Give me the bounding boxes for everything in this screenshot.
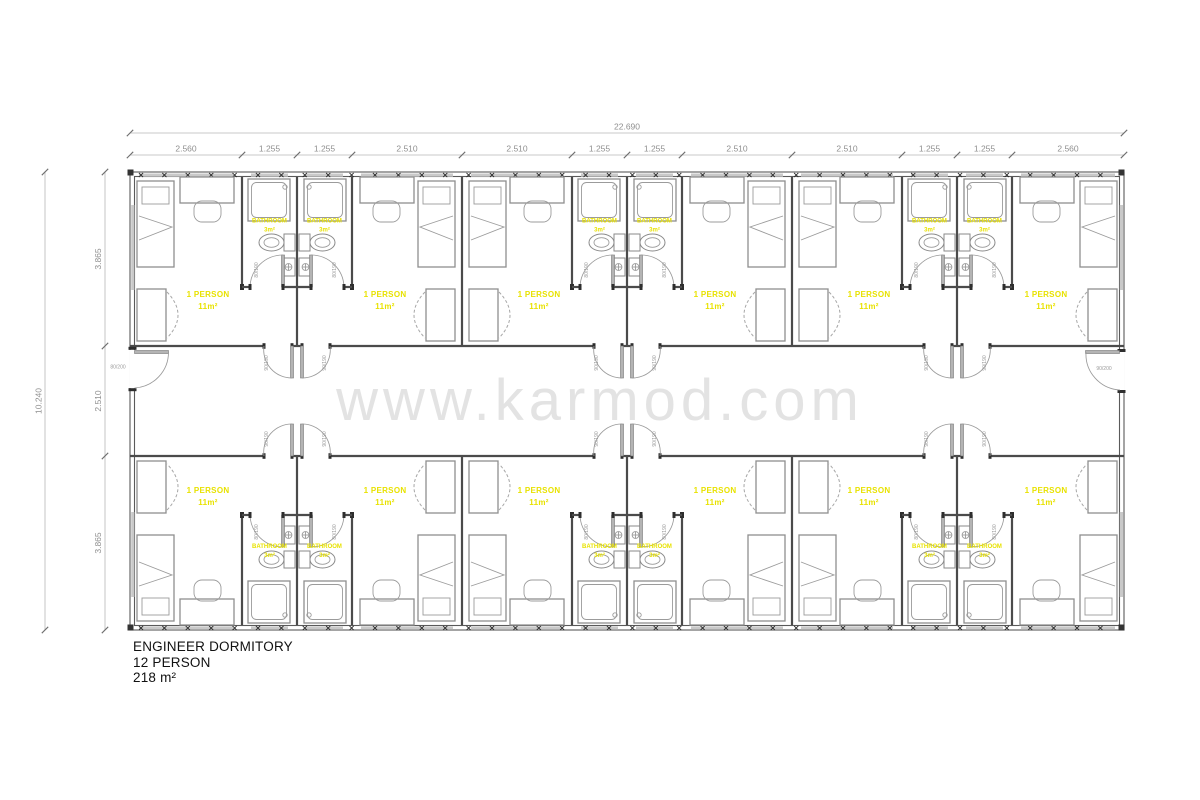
bathroom-door-leaf	[310, 255, 313, 287]
chair	[703, 580, 730, 601]
chair	[854, 201, 881, 222]
bathroom-label: 3m²	[319, 227, 330, 234]
toilet-tank	[629, 234, 640, 251]
door-jamb	[579, 284, 582, 290]
door-size-label: 80/190	[332, 524, 338, 540]
chair	[194, 201, 221, 222]
width-dimension-label: 2.510	[506, 144, 528, 154]
bathroom-label: 3m²	[264, 552, 275, 559]
door-size-label: 90/190	[594, 355, 600, 371]
bathroom-label: 3m²	[979, 227, 990, 234]
bathroom-label: 3m²	[924, 227, 935, 234]
bathroom-label: 3m²	[594, 552, 605, 559]
chair	[194, 580, 221, 601]
room-door-leaf	[951, 346, 954, 378]
bed	[799, 181, 836, 267]
room-label: 11m²	[198, 498, 217, 507]
bathroom-door-swing	[971, 515, 1004, 547]
bed	[469, 181, 506, 267]
title-capacity: 12 PERSON	[133, 655, 293, 671]
bed	[799, 535, 836, 621]
toilet-tank	[614, 234, 625, 251]
wardrobe	[426, 289, 455, 341]
toilet-tank	[944, 551, 955, 568]
door-jamb	[612, 284, 615, 290]
height-dimension-label: 3.865	[93, 532, 103, 554]
width-dimension-label: 1.255	[259, 144, 281, 154]
desk	[360, 599, 414, 625]
door-jamb	[1118, 390, 1126, 393]
toilet-tank	[284, 234, 295, 251]
toilet	[310, 234, 335, 251]
width-dimension-label: 2.560	[175, 144, 197, 154]
bathroom-door-swing	[641, 515, 674, 547]
wardrobe	[469, 289, 498, 341]
room-label: 11m²	[375, 302, 394, 311]
room-door-leaf	[951, 424, 954, 456]
wardrobe	[756, 461, 785, 513]
bathroom-door-swing	[971, 255, 1004, 287]
toilet	[919, 234, 944, 251]
bathroom-label: BATHROOM	[582, 219, 617, 225]
wardrobe	[137, 461, 166, 513]
wardrobe-door	[744, 464, 755, 510]
bathroom-door-swing	[311, 515, 344, 547]
wardrobe-door	[167, 464, 178, 510]
width-dimension-label: 2.560	[1057, 144, 1079, 154]
bathroom-label: BATHROOM	[967, 544, 1002, 550]
window-band	[306, 627, 343, 630]
width-dimension-label: 1.255	[589, 144, 611, 154]
wardrobe-door	[167, 292, 178, 338]
bathroom-label: BATHROOM	[252, 219, 287, 225]
room-label: 11m²	[859, 302, 878, 311]
door-jamb	[343, 512, 346, 518]
bathroom-door-swing	[641, 255, 674, 287]
bathroom-label: BATHROOM	[582, 544, 617, 550]
door-jamb	[970, 284, 973, 290]
room-label: 1 PERSON	[694, 486, 737, 495]
desk	[180, 177, 234, 203]
room-label: 1 PERSON	[1025, 290, 1068, 299]
door-jamb	[579, 512, 582, 518]
bathroom-label: 3m²	[319, 552, 330, 559]
room-door-leaf	[291, 346, 294, 378]
door-size-label: 80/190	[254, 262, 260, 278]
room-label: 11m²	[375, 498, 394, 507]
door-jamb	[942, 512, 945, 518]
bed	[137, 181, 174, 267]
room-door-leaf	[961, 346, 964, 378]
entry-door-leaf	[1086, 351, 1120, 354]
room-label: 1 PERSON	[364, 486, 407, 495]
window-band	[1120, 512, 1123, 597]
room-door-leaf	[961, 424, 964, 456]
desk	[840, 599, 894, 625]
width-dimension-label: 1.255	[314, 144, 336, 154]
door-size-label: 90/190	[594, 431, 600, 447]
title-project-name: ENGINEER DORMITORY	[133, 639, 293, 655]
bathroom-label: BATHROOM	[252, 544, 287, 550]
chair	[524, 580, 551, 601]
door-jamb	[909, 512, 912, 518]
door-size-label: 90/190	[652, 431, 658, 447]
toilet-tank	[944, 234, 955, 251]
wardrobe-door	[1076, 464, 1087, 510]
room-label: 1 PERSON	[187, 486, 230, 495]
door-size-label: 80/190	[662, 524, 668, 540]
window-band	[801, 627, 893, 630]
total-height-dimension: 10.240	[34, 388, 44, 414]
bathroom-label: 3m²	[979, 552, 990, 559]
bathroom-label: BATHROOM	[307, 544, 342, 550]
door-jamb	[249, 284, 252, 290]
bathroom-label: BATHROOM	[637, 544, 672, 550]
door-jamb	[640, 512, 643, 518]
door-jamb	[970, 512, 973, 518]
wall-opening	[129, 350, 136, 388]
door-size-label: 90/190	[924, 355, 930, 371]
room-door-leaf	[291, 424, 294, 456]
bathroom-label: 3m²	[924, 552, 935, 559]
wardrobe	[1088, 461, 1117, 513]
wardrobe	[756, 289, 785, 341]
wardrobe	[799, 461, 828, 513]
room-door-leaf	[301, 346, 304, 378]
wardrobe-door	[499, 292, 510, 338]
bathroom-label: BATHROOM	[912, 219, 947, 225]
door-size-label: 90/200	[1096, 366, 1112, 372]
door-size-label: 80/190	[254, 524, 260, 540]
bathroom-label: BATHROOM	[637, 219, 672, 225]
door-jamb	[942, 284, 945, 290]
door-jamb	[282, 284, 285, 290]
bathroom-door-leaf	[612, 255, 615, 287]
bathroom-door-leaf	[942, 255, 945, 287]
room-label: 11m²	[1036, 302, 1055, 311]
door-jamb	[282, 512, 285, 518]
room-label: 1 PERSON	[187, 290, 230, 299]
window-band	[131, 512, 134, 597]
bed	[137, 535, 174, 621]
room-door-leaf	[621, 424, 624, 456]
bathroom-label: BATHROOM	[967, 219, 1002, 225]
corner-post	[1119, 170, 1125, 176]
room-door-leaf	[631, 424, 634, 456]
title-area: 218 m²	[133, 670, 293, 686]
window-band	[131, 205, 134, 290]
room-label: 11m²	[705, 302, 724, 311]
width-dimension-label: 1.255	[919, 144, 941, 154]
bathroom-label: BATHROOM	[307, 219, 342, 225]
room-label: 1 PERSON	[694, 290, 737, 299]
chair	[1033, 201, 1060, 222]
door-size-label: 80/190	[914, 262, 920, 278]
height-dimension-label: 2.510	[93, 390, 103, 412]
toilet-tank	[299, 234, 310, 251]
door-jamb	[673, 512, 676, 518]
desk	[360, 177, 414, 203]
room-label: 11m²	[859, 498, 878, 507]
width-dimension-label: 2.510	[396, 144, 418, 154]
desk	[510, 177, 564, 203]
corner-post	[128, 170, 134, 176]
bed	[748, 535, 785, 621]
door-size-label: 80/190	[914, 524, 920, 540]
room-label: 11m²	[1036, 498, 1055, 507]
chair	[373, 580, 400, 601]
chair	[854, 580, 881, 601]
desk	[180, 599, 234, 625]
toilet-tank	[614, 551, 625, 568]
door-size-label: 90/190	[982, 355, 988, 371]
door-jamb	[129, 347, 137, 350]
corner-post	[1119, 625, 1125, 631]
wall-opening	[1118, 352, 1125, 390]
room-label: 1 PERSON	[848, 290, 891, 299]
bathroom-door-leaf	[612, 515, 615, 547]
door-size-label: 90/190	[652, 355, 658, 371]
door-jamb	[129, 388, 137, 391]
wardrobe	[426, 461, 455, 513]
toilet	[589, 234, 614, 251]
wardrobe-door	[1076, 292, 1087, 338]
door-jamb	[673, 284, 676, 290]
door-size-label: 90/190	[322, 355, 328, 371]
bathroom-label: 3m²	[649, 552, 660, 559]
toilet-tank	[959, 234, 970, 251]
room-label: 1 PERSON	[364, 290, 407, 299]
door-jamb	[343, 284, 346, 290]
door-jamb	[310, 512, 313, 518]
corner-post	[128, 625, 134, 631]
window-band	[911, 174, 948, 177]
door-jamb	[249, 512, 252, 518]
width-dimension-label: 2.510	[836, 144, 858, 154]
bed	[418, 181, 455, 267]
door-size-label: 80/190	[662, 262, 668, 278]
room-label: 11m²	[705, 498, 724, 507]
room-door-leaf	[301, 424, 304, 456]
height-dimension-label: 3.865	[93, 248, 103, 270]
bed	[748, 181, 785, 267]
toilet-tank	[299, 551, 310, 568]
width-dimension-label: 1.255	[644, 144, 666, 154]
entry-door-swing	[135, 352, 169, 388]
door-size-label: 90/190	[924, 431, 930, 447]
bathroom-label: 3m²	[264, 227, 275, 234]
door-jamb	[310, 284, 313, 290]
door-size-label: 90/190	[982, 431, 988, 447]
toilet	[970, 234, 995, 251]
bathroom-door-leaf	[942, 515, 945, 547]
bathroom-door-leaf	[640, 515, 643, 547]
wardrobe-door	[829, 464, 840, 510]
chair	[1033, 580, 1060, 601]
door-size-label: 80/190	[992, 262, 998, 278]
room-label: 11m²	[529, 302, 548, 311]
bathroom-door-leaf	[970, 515, 973, 547]
bathroom-door-leaf	[282, 255, 285, 287]
total-width-dimension: 22.690	[614, 122, 640, 132]
room-label: 1 PERSON	[518, 290, 561, 299]
entry-door-leaf	[135, 351, 169, 354]
room-label: 1 PERSON	[848, 486, 891, 495]
door-size-label: 80/190	[584, 524, 590, 540]
bed	[1080, 181, 1117, 267]
door-jamb	[1003, 284, 1006, 290]
wardrobe	[799, 289, 828, 341]
door-size-label: 90/190	[264, 431, 270, 447]
bathroom-label: BATHROOM	[912, 544, 947, 550]
toilet	[640, 234, 665, 251]
door-jamb	[909, 284, 912, 290]
room-label: 11m²	[198, 302, 217, 311]
toilet-tank	[284, 551, 295, 568]
toilet-tank	[629, 551, 640, 568]
wardrobe	[137, 289, 166, 341]
toilet	[259, 234, 284, 251]
bathroom-label: 3m²	[594, 227, 605, 234]
width-dimension-label: 1.255	[974, 144, 996, 154]
room-label: 1 PERSON	[518, 486, 561, 495]
room-label: 1 PERSON	[1025, 486, 1068, 495]
window-band	[1120, 205, 1123, 290]
desk	[840, 177, 894, 203]
watermark: www.karmod.com	[335, 368, 864, 433]
title-block: ENGINEER DORMITORY 12 PERSON 218 m²	[133, 639, 293, 686]
bathroom-door-swing	[311, 255, 344, 287]
desk	[1020, 177, 1074, 203]
chair	[703, 201, 730, 222]
door-jamb	[640, 284, 643, 290]
window-band	[911, 627, 948, 630]
bed	[469, 535, 506, 621]
window-band	[691, 627, 783, 630]
toilet-tank	[959, 551, 970, 568]
wardrobe-door	[744, 292, 755, 338]
width-dimension-label: 2.510	[726, 144, 748, 154]
desk	[510, 599, 564, 625]
door-size-label: 80/190	[584, 262, 590, 278]
window-band	[306, 174, 343, 177]
room-door-leaf	[631, 346, 634, 378]
chair	[524, 201, 551, 222]
bathroom-door-leaf	[282, 515, 285, 547]
bathroom-label: 3m²	[649, 227, 660, 234]
door-size-label: 80/190	[992, 524, 998, 540]
bathroom-door-leaf	[640, 255, 643, 287]
wardrobe	[1088, 289, 1117, 341]
desk	[1020, 599, 1074, 625]
desk	[690, 177, 744, 203]
door-size-label: 80/200	[110, 365, 126, 371]
desk	[690, 599, 744, 625]
door-jamb	[1003, 512, 1006, 518]
room-door-leaf	[621, 346, 624, 378]
bathroom-door-leaf	[970, 255, 973, 287]
window-band	[691, 174, 783, 177]
wardrobe-door	[499, 464, 510, 510]
door-size-label: 80/190	[332, 262, 338, 278]
chair	[373, 201, 400, 222]
window-band	[801, 174, 893, 177]
door-size-label: 90/190	[322, 431, 328, 447]
wardrobe-door	[414, 292, 425, 338]
room-label: 11m²	[529, 498, 548, 507]
bed	[418, 535, 455, 621]
floor-plan-page: www.karmod.com22.6902.5601.2551.2552.510…	[0, 0, 1200, 800]
wardrobe	[469, 461, 498, 513]
bathroom-door-leaf	[310, 515, 313, 547]
wardrobe-door	[414, 464, 425, 510]
door-jamb	[612, 512, 615, 518]
door-size-label: 90/190	[264, 355, 270, 371]
bed	[1080, 535, 1117, 621]
wardrobe-door	[829, 292, 840, 338]
